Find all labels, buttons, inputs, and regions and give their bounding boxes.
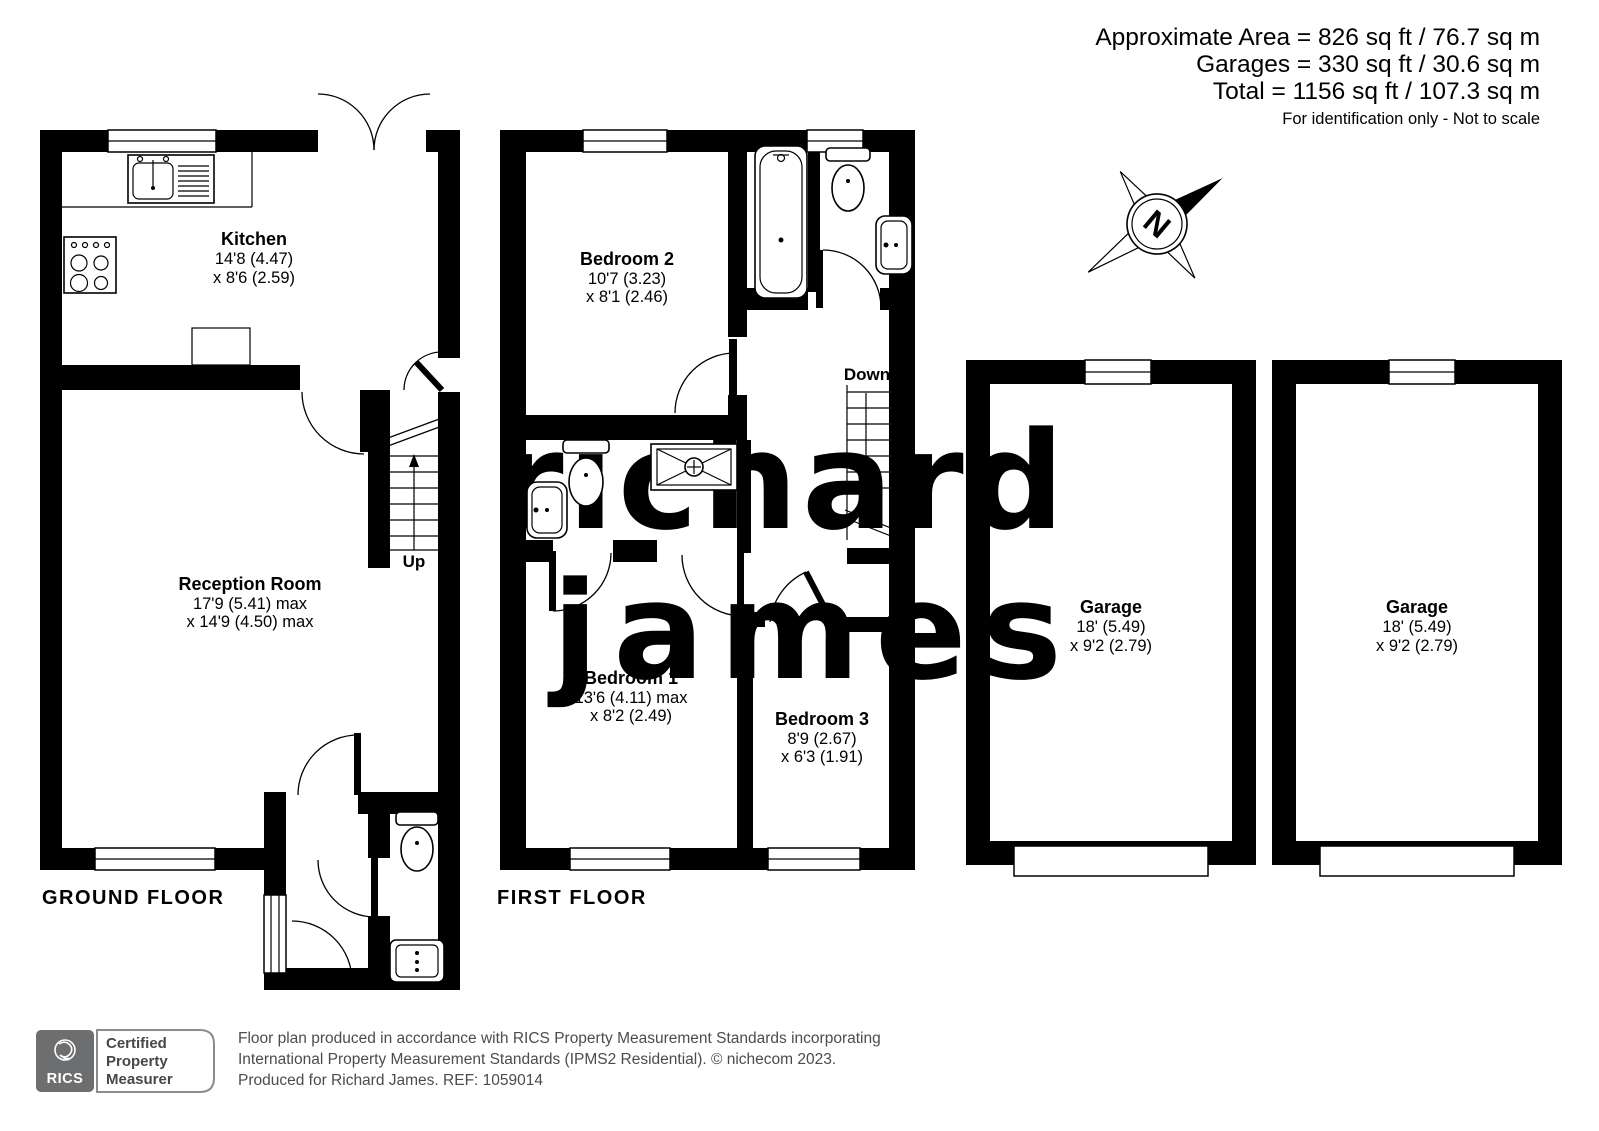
badge-line1: Certified: [106, 1035, 167, 1052]
kitchen-dim1: 14'8 (4.47): [215, 250, 293, 268]
front-door-leaf: [416, 362, 442, 390]
hall-window: [264, 895, 286, 973]
ground-floor-plan: Kitchen 14'8 (4.47) x 8'6 (2.59) Recepti…: [40, 94, 460, 990]
reception-label: Reception Room: [178, 574, 321, 594]
kitchen-dim2: x 8'6 (2.59): [213, 269, 295, 287]
badge-line2: Property: [106, 1053, 168, 1070]
footer-line1: Floor plan produced in accordance with R…: [238, 1030, 881, 1047]
rics-text: RICS: [47, 1071, 84, 1087]
kitchen-drainer: [178, 166, 209, 196]
shower-room-door-leaf: [549, 551, 556, 611]
area-summary: Approximate Area = 826 sq ft / 76.7 sq m…: [1095, 24, 1540, 128]
total-area-text: Total = 1156 sq ft / 107.3 sq m: [1213, 78, 1540, 105]
approximate-area-text: Approximate Area = 826 sq ft / 76.7 sq m: [1095, 24, 1540, 51]
hall-door-leaf: [354, 733, 361, 795]
garage1-dim2: x 9'2 (2.79): [1070, 637, 1152, 655]
bedroom3-dim2: x 6'3 (1.91): [781, 748, 863, 766]
certified-measurer-badge: Certified Property Measurer: [97, 1030, 214, 1092]
french-door-right: [374, 94, 430, 150]
french-door-left: [318, 94, 374, 150]
kitchen-peninsula: [192, 328, 250, 365]
badge-line3: Measurer: [106, 1071, 173, 1088]
ground-floor-title: GROUND FLOOR: [42, 887, 224, 909]
footer-disclaimer-text: Floor plan produced in accordance with R…: [238, 1030, 881, 1089]
floorplan-canvas: richard james Approximate Area = 826 sq …: [0, 0, 1599, 1131]
garage2-label: Garage: [1386, 597, 1448, 617]
bathroom-toilet-bowl: [832, 165, 864, 211]
bathroom-toilet-cistern: [826, 148, 870, 161]
disclaimer-text: For identification only - Not to scale: [1282, 110, 1540, 128]
footer-line3: Produced for Richard James. REF: 1059014: [238, 1072, 543, 1089]
bedroom3-dim1: 8'9 (2.67): [787, 730, 856, 748]
wc-door-arc: [318, 860, 375, 917]
reception-dim1: 17'9 (5.41) max: [193, 595, 308, 613]
first-floor-title: FIRST FLOOR: [497, 887, 647, 909]
bedroom2-door-leaf: [729, 339, 737, 397]
floorplan-page: richard james Approximate Area = 826 sq …: [0, 0, 1599, 1131]
kitchen-door-leaf: [360, 390, 368, 452]
bedroom1-door-leaf: [737, 553, 744, 613]
garage2-dim2: x 9'2 (2.79): [1376, 637, 1458, 655]
stairs-up-label: Up: [403, 552, 426, 571]
kitchen-door-arc: [302, 392, 364, 454]
bedroom1-dim2: x 8'2 (2.49): [590, 707, 672, 725]
garage1-label: Garage: [1080, 597, 1142, 617]
garage2-door: [1320, 846, 1514, 876]
shower-room-toilet-cistern: [563, 440, 609, 453]
reception-dim2: x 14'9 (4.50) max: [187, 613, 315, 631]
bedroom2-label: Bedroom 2: [580, 249, 674, 269]
ground-wc-fixtures: [390, 812, 444, 982]
garages-area-text: Garages = 330 sq ft / 30.6 sq m: [1196, 51, 1540, 78]
bathroom-door-leaf: [816, 250, 823, 308]
garage1-dim1: 18' (5.49): [1076, 618, 1145, 636]
wc-toilet-cistern: [396, 812, 438, 825]
bathtub: [755, 146, 807, 298]
wc-door-leaf: [371, 858, 378, 916]
garage2-plan: Garage 18' (5.49) x 9'2 (2.79): [1272, 360, 1562, 876]
hall-door-arc: [298, 735, 358, 795]
footer: RICS Certified Property Measurer Floor p…: [36, 1030, 881, 1092]
wc-toilet-bowl: [401, 827, 433, 871]
bedroom3-label: Bedroom 3: [775, 709, 869, 729]
garage1-door: [1014, 846, 1208, 876]
bedroom1-dim1: 13'6 (4.11) max: [575, 689, 689, 707]
footer-line2: International Property Measurement Stand…: [238, 1051, 836, 1068]
ground-floor-stairs: [388, 418, 442, 550]
bedroom2-dim2: x 8'1 (2.46): [586, 288, 668, 306]
rics-logo: RICS: [36, 1030, 94, 1092]
compass-north-arrow: N: [1051, 126, 1260, 327]
shower-room-toilet-bowl: [569, 458, 603, 506]
bedroom2-dim1: 10'7 (3.23): [588, 270, 666, 288]
bedroom1-label: Bedroom 1: [584, 668, 678, 688]
kitchen-label: Kitchen: [221, 229, 287, 249]
stairs-down-label: Down: [844, 365, 890, 384]
bathroom-door-arc: [823, 250, 881, 308]
garage2-dim1: 18' (5.49): [1382, 618, 1451, 636]
bathroom-fixtures: [755, 146, 912, 298]
